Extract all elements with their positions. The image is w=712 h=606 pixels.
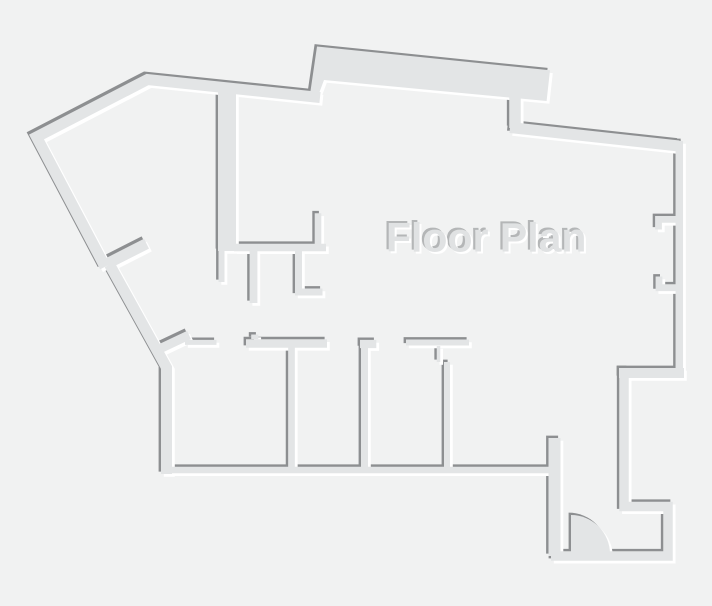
svg-text:Floor Plan: Floor Plan xyxy=(386,215,586,261)
